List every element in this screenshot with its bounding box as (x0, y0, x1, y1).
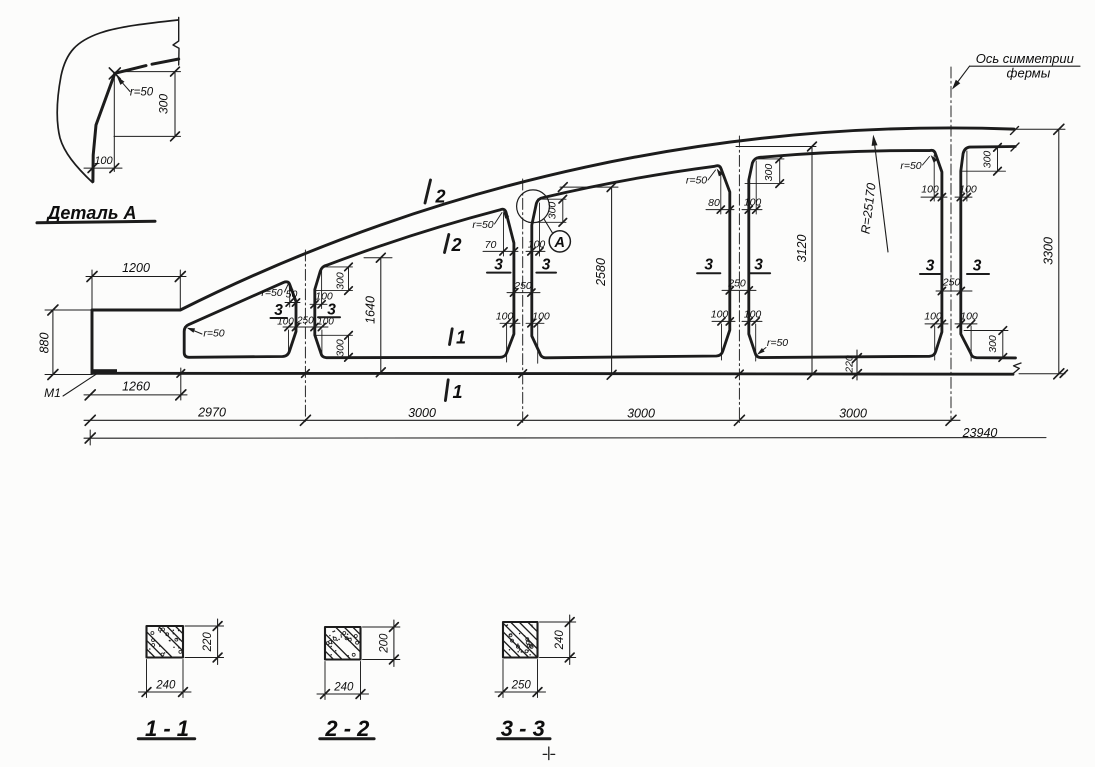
svg-text:220: 220 (844, 355, 856, 374)
svg-text:23940: 23940 (962, 426, 998, 440)
svg-text:880: 880 (38, 333, 52, 354)
svg-text:100: 100 (960, 311, 978, 323)
svg-text:100: 100 (496, 311, 514, 323)
svg-text:3: 3 (494, 257, 503, 274)
svg-text:М1: М1 (44, 386, 61, 400)
svg-text:300: 300 (335, 272, 347, 290)
svg-text:3000: 3000 (408, 406, 436, 420)
svg-text:300: 300 (987, 335, 999, 353)
svg-text:250: 250 (942, 277, 961, 289)
svg-text:фермы: фермы (1006, 66, 1050, 81)
svg-text:250: 250 (513, 280, 532, 292)
svg-text:2 - 2: 2 - 2 (324, 716, 370, 741)
svg-text:3: 3 (973, 258, 982, 275)
svg-text:50: 50 (286, 289, 298, 301)
svg-text:Ось симметрии: Ось симметрии (976, 51, 1074, 66)
svg-text:1: 1 (456, 328, 466, 348)
svg-text:А: А (554, 235, 565, 251)
svg-text:2: 2 (434, 187, 445, 207)
svg-text:100: 100 (921, 184, 939, 196)
svg-text:240: 240 (554, 630, 566, 651)
svg-text:2: 2 (450, 235, 461, 255)
svg-text:200: 200 (378, 633, 390, 654)
svg-text:r=50: r=50 (130, 87, 154, 99)
svg-text:1260: 1260 (122, 380, 150, 394)
svg-text:r=50: r=50 (767, 337, 788, 349)
svg-text:3300: 3300 (1042, 237, 1056, 265)
svg-text:80: 80 (708, 197, 720, 209)
svg-text:100: 100 (528, 239, 546, 251)
svg-text:220: 220 (202, 632, 214, 653)
svg-text:1 - 1: 1 - 1 (145, 716, 189, 741)
svg-text:100: 100 (924, 311, 942, 323)
svg-text:r=50: r=50 (472, 219, 493, 231)
svg-text:300: 300 (335, 339, 347, 357)
svg-text:300: 300 (763, 164, 775, 182)
svg-text:1: 1 (452, 382, 462, 402)
svg-text:3 - 3: 3 - 3 (501, 716, 545, 741)
svg-text:250: 250 (511, 680, 532, 692)
svg-text:100: 100 (94, 155, 113, 167)
svg-text:70: 70 (485, 239, 497, 251)
svg-text:2580: 2580 (594, 258, 608, 287)
svg-text:3: 3 (327, 302, 336, 319)
svg-text:Деталь А: Деталь А (45, 203, 136, 223)
svg-text:100: 100 (532, 311, 550, 323)
svg-text:100: 100 (711, 309, 729, 321)
svg-text:r=50: r=50 (686, 175, 707, 187)
svg-text:3000: 3000 (839, 407, 867, 421)
svg-text:r=50: r=50 (261, 287, 282, 299)
svg-text:100: 100 (744, 197, 762, 209)
svg-text:3: 3 (274, 302, 283, 319)
svg-text:1640: 1640 (364, 296, 378, 324)
svg-text:r=50: r=50 (900, 160, 921, 172)
svg-text:240: 240 (155, 680, 176, 692)
svg-text:1200: 1200 (122, 261, 150, 275)
svg-text:3000: 3000 (627, 407, 655, 421)
svg-text:2970: 2970 (197, 406, 226, 420)
svg-text:250: 250 (296, 315, 314, 326)
svg-text:100: 100 (744, 309, 762, 321)
svg-text:300: 300 (982, 151, 994, 169)
svg-text:100: 100 (959, 184, 977, 196)
svg-text:3: 3 (754, 257, 763, 274)
svg-text:3: 3 (926, 258, 935, 275)
svg-text:3: 3 (542, 257, 551, 274)
svg-text:r=50: r=50 (203, 328, 224, 340)
svg-text:3120: 3120 (795, 235, 809, 263)
svg-text:240: 240 (333, 682, 354, 694)
svg-text:300: 300 (157, 94, 171, 114)
svg-text:300: 300 (546, 202, 558, 220)
svg-text:250: 250 (727, 278, 746, 290)
svg-text:3: 3 (704, 257, 713, 274)
